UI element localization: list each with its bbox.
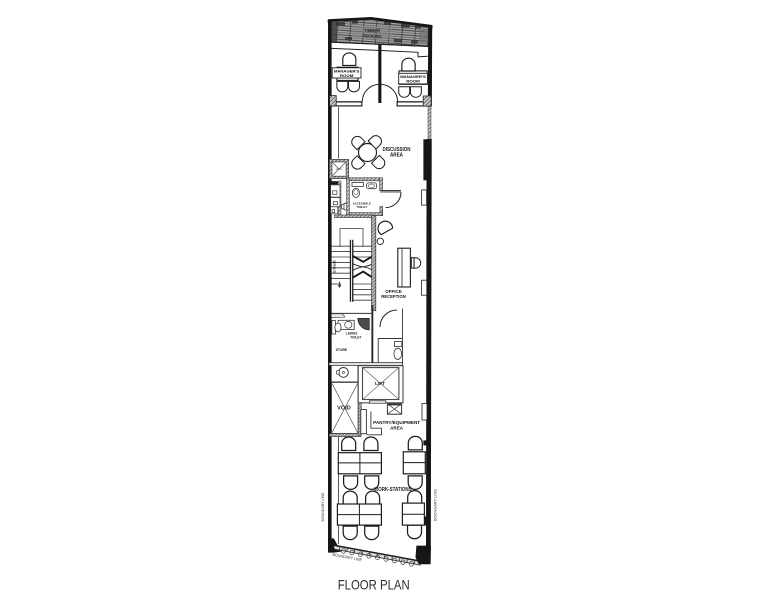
svg-text:RECEPTION: RECEPTION xyxy=(381,294,406,299)
svg-text:STAIR: STAIR xyxy=(332,259,337,273)
svg-text:AREA: AREA xyxy=(390,153,403,159)
svg-text:LIFT: LIFT xyxy=(375,381,385,387)
svg-text:BOUNDARY LINE: BOUNDARY LINE xyxy=(320,492,325,521)
svg-text:VOID: VOID xyxy=(337,406,351,412)
svg-text:BOUNDARY LINE: BOUNDARY LINE xyxy=(432,489,437,521)
svg-text:WORK-STATIONS: WORK-STATIONS xyxy=(374,487,412,493)
svg-text:DECKING: DECKING xyxy=(362,33,381,39)
svg-text:ROOM: ROOM xyxy=(406,79,420,84)
svg-text:AREA: AREA xyxy=(390,425,404,430)
svg-text:AHU: AHU xyxy=(336,167,342,171)
svg-text:TOILET: TOILET xyxy=(350,335,361,339)
svg-text:ROOM: ROOM xyxy=(340,73,354,78)
svg-text:TOILET: TOILET xyxy=(356,205,367,209)
svg-text:FLOOR PLAN: FLOOR PLAN xyxy=(338,577,410,593)
svg-text:STORE: STORE xyxy=(336,348,348,352)
